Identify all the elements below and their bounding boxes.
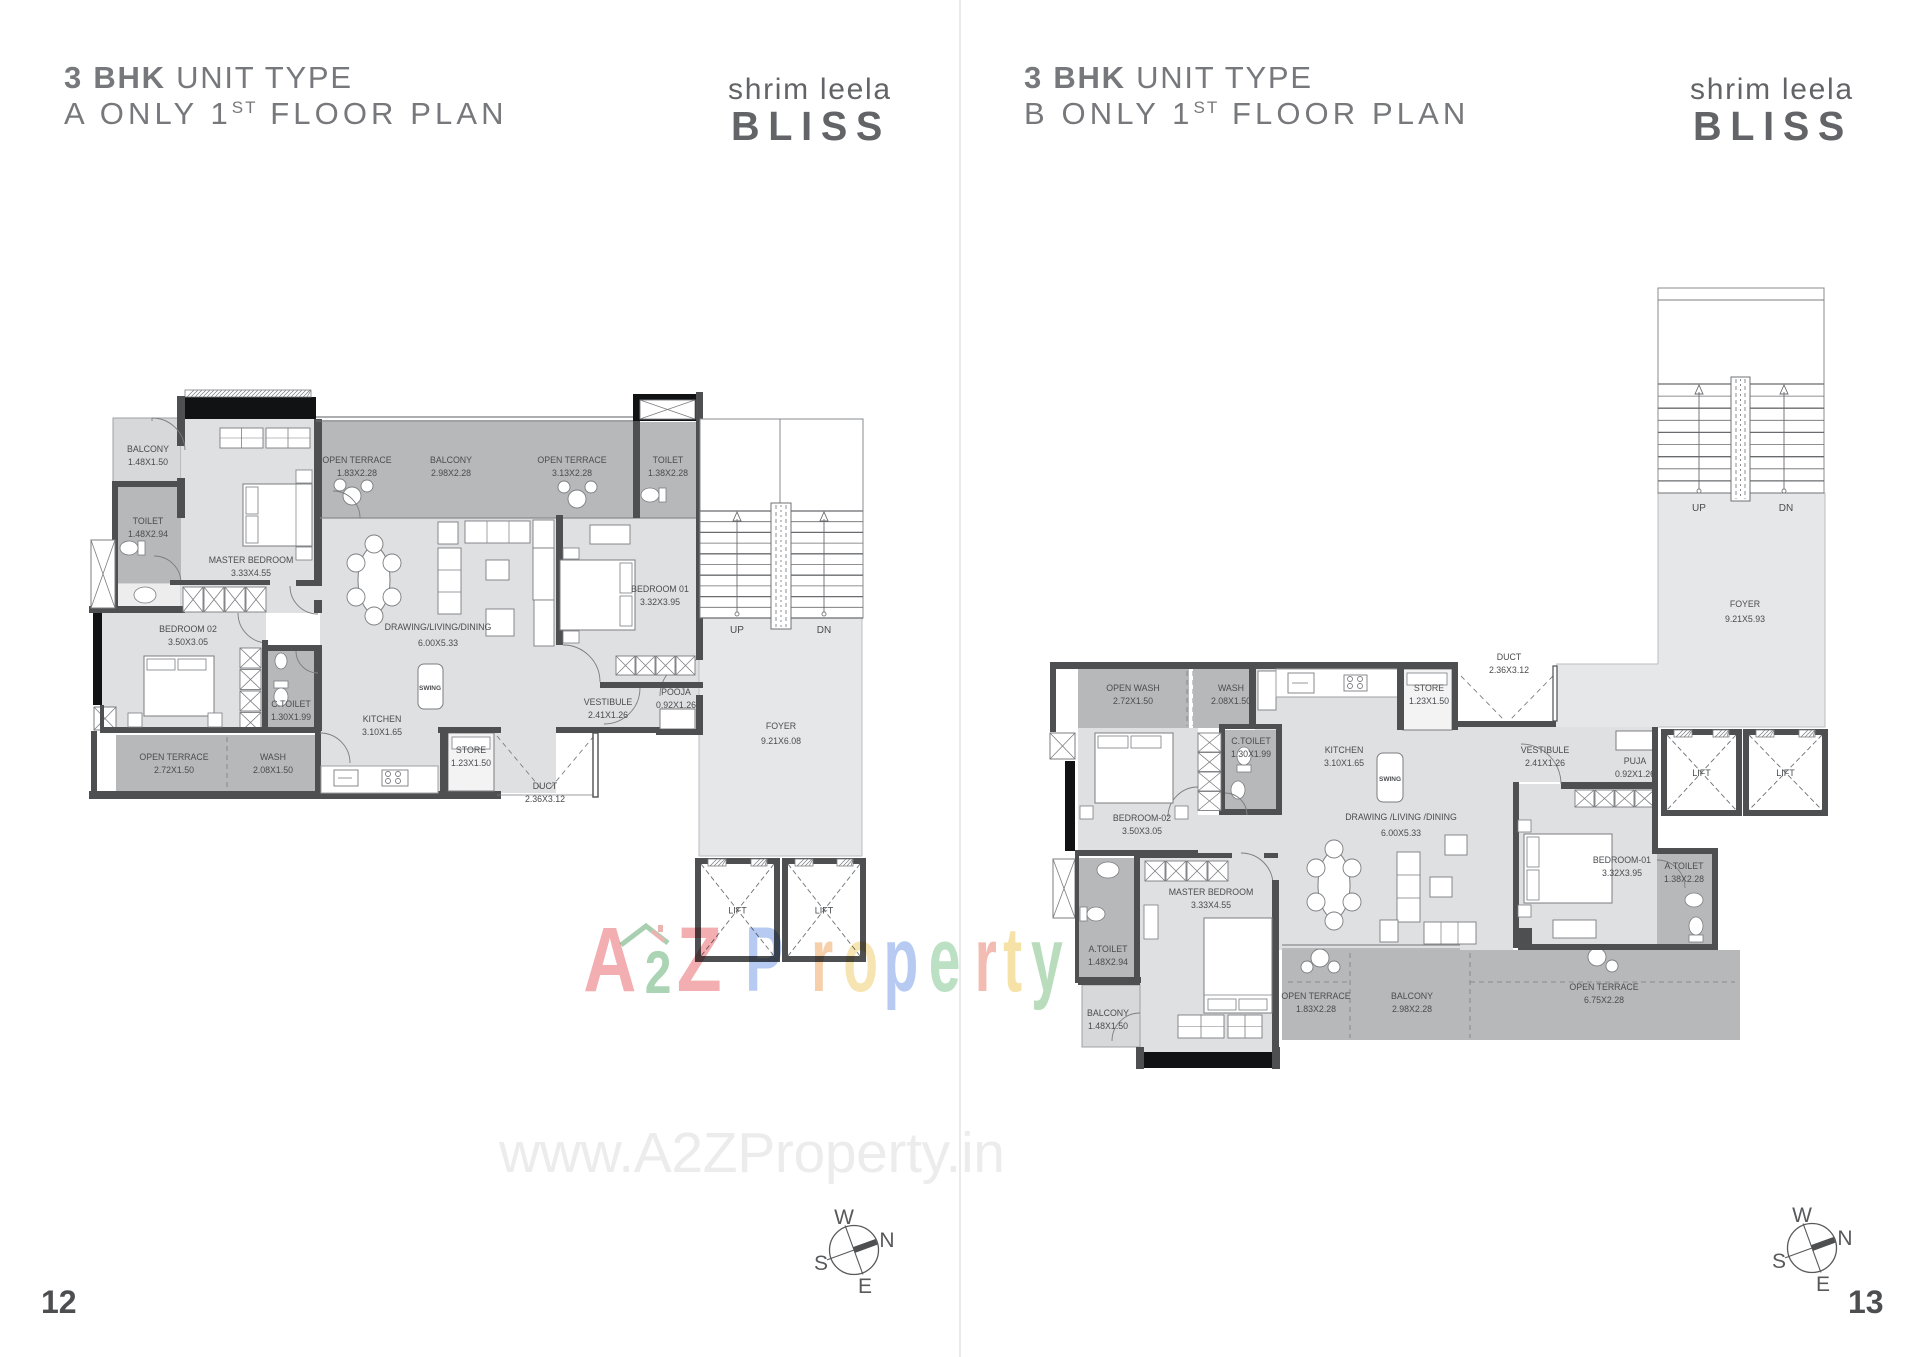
svg-text:2.72X1.50: 2.72X1.50 <box>1113 696 1153 706</box>
svg-text:B ONLY 1ST FLOOR PLAN: B ONLY 1ST FLOOR PLAN <box>1024 96 1469 131</box>
svg-text:3 BHK UNIT TYPE: 3 BHK UNIT TYPE <box>64 60 353 95</box>
svg-text:TOILET: TOILET <box>653 455 684 465</box>
svg-text:1.30X1.99: 1.30X1.99 <box>271 712 311 722</box>
svg-text:UP: UP <box>1692 503 1706 514</box>
svg-text:A ONLY 1ST FLOOR PLAN: A ONLY 1ST FLOOR PLAN <box>64 96 508 131</box>
svg-text:y: y <box>1031 909 1063 1011</box>
svg-text:1.23X1.50: 1.23X1.50 <box>451 758 491 768</box>
svg-text:BALCONY: BALCONY <box>1391 991 1433 1001</box>
svg-text:1.30X1.99: 1.30X1.99 <box>1231 749 1271 759</box>
svg-text:1.38X2.28: 1.38X2.28 <box>1664 874 1704 884</box>
svg-text:LIFT: LIFT <box>728 906 747 916</box>
svg-text:OPEN TERRACE: OPEN TERRACE <box>139 752 208 762</box>
svg-text:9.21X5.93: 9.21X5.93 <box>1725 614 1765 624</box>
svg-text:BEDROOM-02: BEDROOM-02 <box>1113 813 1171 823</box>
svg-text:LIFT: LIFT <box>1692 768 1711 778</box>
svg-text:2.98X2.28: 2.98X2.28 <box>431 468 471 478</box>
svg-text:MASTER BEDROOM: MASTER BEDROOM <box>209 555 294 565</box>
svg-text:DN: DN <box>817 625 831 636</box>
svg-text:2.41X1.26: 2.41X1.26 <box>1525 758 1565 768</box>
svg-text:DRAWING /LIVING /DINING: DRAWING /LIVING /DINING <box>1345 812 1457 822</box>
svg-text:2: 2 <box>645 939 672 1006</box>
svg-text:3.10X1.65: 3.10X1.65 <box>1324 758 1364 768</box>
svg-text:P: P <box>745 909 783 1011</box>
svg-text:1.83X2.28: 1.83X2.28 <box>1296 1004 1336 1014</box>
svg-text:Z: Z <box>677 908 722 1011</box>
svg-text:o: o <box>843 909 878 1011</box>
svg-text:2.08X1.50: 2.08X1.50 <box>253 765 293 775</box>
svg-text:2.98X2.28: 2.98X2.28 <box>1392 1004 1432 1014</box>
svg-text:0.92X1.26: 0.92X1.26 <box>656 700 696 710</box>
svg-text:BALCONY: BALCONY <box>430 455 472 465</box>
svg-text:13: 13 <box>1848 1284 1884 1320</box>
svg-text:6.00X5.33: 6.00X5.33 <box>418 638 458 648</box>
svg-text:3.33X4.55: 3.33X4.55 <box>1191 900 1231 910</box>
svg-text:1.48X2.94: 1.48X2.94 <box>128 529 168 539</box>
svg-text:3.10X1.65: 3.10X1.65 <box>362 727 402 737</box>
svg-text:POOJA: POOJA <box>661 687 691 697</box>
svg-text:OPEN TERRACE: OPEN TERRACE <box>1569 982 1638 992</box>
svg-text:C.TOILET: C.TOILET <box>271 699 311 709</box>
svg-text:W: W <box>834 1206 854 1229</box>
svg-text:SWING: SWING <box>1379 776 1401 783</box>
svg-text:1.38X2.28: 1.38X2.28 <box>648 468 688 478</box>
svg-text:N: N <box>1837 1227 1852 1250</box>
svg-text:UP: UP <box>730 625 744 636</box>
svg-text:WASH: WASH <box>1218 683 1244 693</box>
svg-text:2.72X1.50: 2.72X1.50 <box>154 765 194 775</box>
svg-text:0.92X1.26: 0.92X1.26 <box>1615 769 1655 779</box>
svg-text:2.08X1.50: 2.08X1.50 <box>1211 696 1251 706</box>
svg-text:3.50X3.05: 3.50X3.05 <box>1122 826 1162 836</box>
svg-text:r: r <box>811 909 833 1011</box>
svg-text:p: p <box>884 909 919 1011</box>
svg-text:BEDROOM 01: BEDROOM 01 <box>631 584 689 594</box>
svg-text:shrim leela: shrim leela <box>728 73 891 106</box>
svg-text:1.48X2.94: 1.48X2.94 <box>1088 957 1128 967</box>
svg-text:3.50X3.05: 3.50X3.05 <box>168 637 208 647</box>
svg-text:BEDROOM-01: BEDROOM-01 <box>1593 855 1651 865</box>
svg-text:DN: DN <box>1779 503 1793 514</box>
svg-text:1.48X1.50: 1.48X1.50 <box>1088 1021 1128 1031</box>
svg-text:LIFT: LIFT <box>1776 768 1795 778</box>
svg-text:STORE: STORE <box>456 745 486 755</box>
svg-text:t: t <box>1003 909 1022 1011</box>
svg-text:E: E <box>1816 1273 1830 1296</box>
svg-text:DRAWING/LIVING/DINING: DRAWING/LIVING/DINING <box>385 622 492 632</box>
svg-text:3.32X3.95: 3.32X3.95 <box>640 597 680 607</box>
svg-text:BLISS: BLISS <box>731 103 891 149</box>
svg-text:6.75X2.28: 6.75X2.28 <box>1584 995 1624 1005</box>
svg-text:3.13X2.28: 3.13X2.28 <box>552 468 592 478</box>
svg-text:OPEN TERRACE: OPEN TERRACE <box>1281 991 1350 1001</box>
svg-text:STORE: STORE <box>1414 683 1444 693</box>
svg-text:VESTIBULE: VESTIBULE <box>1521 745 1570 755</box>
svg-text:BEDROOM 02: BEDROOM 02 <box>159 624 217 634</box>
svg-text:e: e <box>929 909 961 1011</box>
svg-text:KITCHEN: KITCHEN <box>1325 745 1364 755</box>
svg-text:KITCHEN: KITCHEN <box>363 714 402 724</box>
svg-text:12: 12 <box>41 1284 77 1320</box>
svg-text:W: W <box>1792 1204 1812 1227</box>
svg-text:6.00X5.33: 6.00X5.33 <box>1381 828 1421 838</box>
svg-text:FOYER: FOYER <box>766 721 796 731</box>
svg-text:A.TOILET: A.TOILET <box>1665 861 1705 871</box>
svg-text:BALCONY: BALCONY <box>1087 1008 1129 1018</box>
svg-text:2.36X3.12: 2.36X3.12 <box>525 794 565 804</box>
svg-text:DUCT: DUCT <box>533 781 558 791</box>
svg-text:S: S <box>814 1252 828 1275</box>
svg-text:OPEN TERRACE: OPEN TERRACE <box>322 455 391 465</box>
svg-text:N: N <box>879 1229 894 1252</box>
svg-text:WASH: WASH <box>260 752 286 762</box>
svg-text:3.32X3.95: 3.32X3.95 <box>1602 868 1642 878</box>
svg-text:MASTER BEDROOM: MASTER BEDROOM <box>1169 887 1254 897</box>
svg-text:1.23X1.50: 1.23X1.50 <box>1409 696 1449 706</box>
svg-text:A.TOILET: A.TOILET <box>1089 944 1129 954</box>
svg-text:2.36X3.12: 2.36X3.12 <box>1489 665 1529 675</box>
svg-text:www.A2ZProperty.in: www.A2ZProperty.in <box>498 1121 1005 1185</box>
svg-text:OPEN WASH: OPEN WASH <box>1106 683 1159 693</box>
svg-text:E: E <box>858 1275 872 1298</box>
svg-text:1.83X2.28: 1.83X2.28 <box>337 468 377 478</box>
svg-text:FOYER: FOYER <box>1730 599 1760 609</box>
svg-text:A: A <box>583 908 636 1011</box>
svg-text:3.33X4.55: 3.33X4.55 <box>231 568 271 578</box>
svg-text:9.21X6.08: 9.21X6.08 <box>761 736 801 746</box>
svg-text:BALCONY: BALCONY <box>127 444 169 454</box>
svg-text:BLISS: BLISS <box>1693 103 1853 149</box>
svg-text:DUCT: DUCT <box>1497 652 1522 662</box>
svg-text:S: S <box>1772 1250 1786 1273</box>
svg-text:3 BHK UNIT TYPE: 3 BHK UNIT TYPE <box>1024 60 1313 95</box>
svg-text:2.41X1.26: 2.41X1.26 <box>588 710 628 720</box>
svg-text:TOILET: TOILET <box>133 516 164 526</box>
svg-text:VESTIBULE: VESTIBULE <box>584 697 633 707</box>
svg-text:SWING: SWING <box>419 685 441 692</box>
svg-text:OPEN TERRACE: OPEN TERRACE <box>537 455 606 465</box>
svg-text:r: r <box>975 909 997 1011</box>
svg-text:C.TOILET: C.TOILET <box>1231 736 1271 746</box>
svg-text:1.48X1.50: 1.48X1.50 <box>128 457 168 467</box>
svg-text:shrim leela: shrim leela <box>1690 73 1853 106</box>
svg-text:PUJA: PUJA <box>1624 756 1647 766</box>
